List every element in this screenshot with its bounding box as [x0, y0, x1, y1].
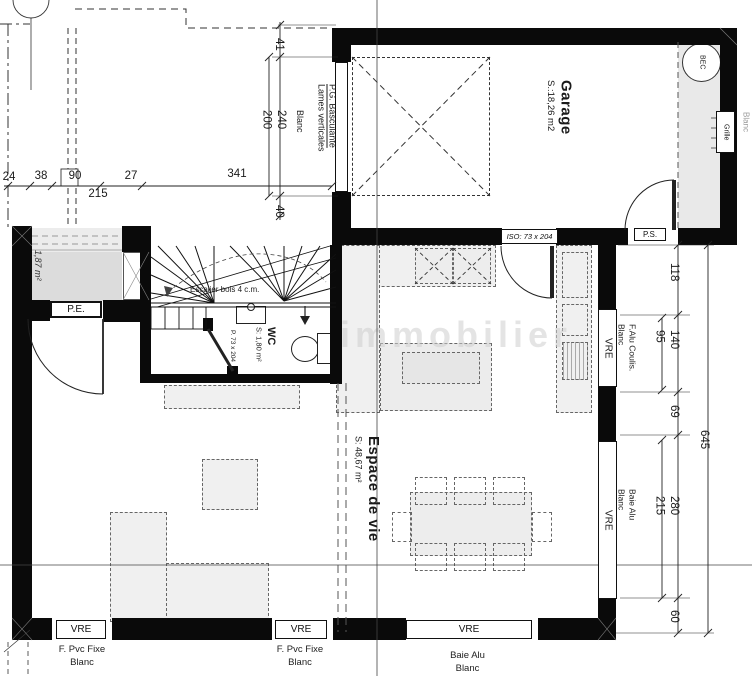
dim-60: 60	[666, 602, 680, 630]
window-type-bottom-left: F. Pvc Fixe Blanc	[42, 644, 122, 670]
dim-645: 645	[696, 420, 710, 460]
bec-floor-spout: BEC	[682, 43, 721, 82]
service-door-box: P.S.	[634, 228, 666, 241]
dim-341: 341	[215, 169, 259, 181]
grille-color-label: Blanc	[741, 112, 751, 154]
wc-area: S: 1,80 m²	[254, 327, 263, 377]
front-wall-left-stub	[32, 300, 50, 321]
kitchen-island-inner	[402, 352, 480, 384]
toilet-bowl	[291, 336, 319, 362]
toilet-tank	[317, 333, 331, 364]
zone-boundary-dashed	[338, 383, 346, 632]
garage-separating-wall-a	[332, 228, 502, 245]
porch-area-label: 1,87 m²	[32, 250, 43, 298]
stairs-label: Escalier bois 4 c.m.	[190, 285, 308, 294]
garage-separating-wall-c	[678, 228, 737, 245]
parking-space-outline	[352, 57, 490, 196]
garage-door-line1: P.G. Basculante	[326, 84, 337, 174]
window-type-line1: Baie Alu	[425, 650, 510, 663]
right-wall-a	[598, 228, 616, 309]
bottom-wall-a	[12, 618, 52, 640]
garage-door-stub-top	[332, 28, 351, 62]
garage-separating-wall-b	[556, 228, 628, 245]
hob-box-2	[453, 248, 491, 284]
chair	[493, 477, 525, 505]
dim-41: 41	[271, 28, 285, 60]
vre-box-bottom-left: VRE	[56, 620, 106, 639]
dim-215-top: 215	[76, 189, 120, 201]
dim-27: 27	[118, 171, 144, 183]
garage-door-color: Blanc	[294, 110, 305, 146]
window-type-right-top: F.Alu Coulis. Blanc	[616, 324, 637, 388]
garage-door-line2: Lames verticales	[315, 84, 326, 174]
sofa-horizontal	[166, 563, 269, 621]
stair-side-wall	[140, 226, 151, 383]
living-name: Espace de vie	[363, 436, 382, 556]
dim-40: 40	[271, 197, 285, 225]
right-wall-b	[598, 387, 616, 441]
chair	[415, 543, 447, 571]
window-type-line2: Blanc	[616, 324, 627, 388]
front-wall-right-stub	[103, 300, 140, 322]
porch-floor	[32, 252, 122, 301]
chair	[454, 477, 486, 505]
sofa-vertical	[110, 512, 167, 622]
entry-door-box: P.E.	[50, 301, 102, 318]
dim-95: 95	[652, 330, 666, 372]
vre-box-bottom-right: VRE	[406, 620, 532, 639]
pouf	[202, 459, 258, 510]
wc-washbasin-tap	[247, 303, 255, 311]
dim-69: 69	[666, 396, 680, 426]
dim-200: 200	[259, 110, 273, 150]
chair	[532, 512, 552, 542]
sideboard	[164, 385, 300, 409]
hall-bottom-wall	[143, 374, 337, 383]
dim-38: 38	[30, 171, 52, 183]
dim-118: 118	[666, 252, 680, 292]
dim-140-95: 140 95	[652, 330, 681, 372]
living-room-label: Espace de vie S: 48,67 m²	[352, 436, 382, 556]
dim-240-200: 240 200	[259, 110, 288, 150]
house-left-wall	[12, 226, 32, 633]
window-type-line1: F. Pvc Fixe	[42, 644, 122, 657]
vre-label: VRE	[602, 338, 614, 359]
garage-area: S.:18,26 m2	[544, 80, 556, 175]
vre-box-right-top: VRE	[598, 309, 617, 387]
kitchen-cabinet-inner-1	[562, 252, 588, 298]
dim-215-right: 215	[652, 496, 666, 538]
bottom-wall-d	[538, 618, 616, 640]
window-type-bottom-right: Baie Alu Blanc	[425, 650, 510, 676]
window-type-line2: Blanc	[425, 663, 510, 676]
dim-280: 280	[666, 496, 680, 538]
window-type-line1: F.Alu Coulis.	[627, 324, 638, 388]
vre-box-bottom-mid: VRE	[275, 620, 327, 639]
iso-door-box: ISO: 73 x 204	[501, 229, 558, 244]
living-area: S: 48,67 m²	[352, 436, 363, 556]
stair-direction-arrow	[300, 306, 310, 325]
vre-label: VRE	[602, 510, 614, 531]
bottom-wall-c	[333, 618, 406, 640]
grille-label: Grille	[721, 124, 729, 140]
wc-door-label: P. 73 x 204	[228, 330, 236, 375]
dim-280-215: 280 215	[652, 496, 681, 538]
window-type-line1: F. Pvc Fixe	[260, 644, 340, 657]
dim-140: 140	[666, 330, 680, 372]
chair	[415, 477, 447, 505]
garage-room-label: Garage S.:18,26 m2	[544, 80, 575, 175]
dim-90: 90	[60, 171, 90, 183]
window-type-line2: Blanc	[42, 657, 122, 670]
window-type-right-bottom: Baie Alu Blanc	[616, 489, 637, 549]
window-type-bottom-mid: F. Pvc Fixe Blanc	[260, 644, 340, 670]
chair	[392, 512, 412, 542]
garage-name: Garage	[556, 80, 575, 175]
wc-name: WC	[263, 327, 277, 377]
window-type-line2: Blanc	[260, 657, 340, 670]
window-type-line1: Baie Alu	[627, 489, 638, 549]
grille-vent-box: Grille	[716, 111, 735, 153]
chair	[493, 543, 525, 571]
vre-box-right-bottom: VRE	[598, 441, 617, 599]
watermark: immobilier	[340, 314, 572, 356]
garage-door-stub-bottom	[332, 192, 351, 233]
window-type-line2: Blanc	[616, 489, 627, 549]
bec-label: BEC	[697, 55, 705, 69]
porch-floor-top	[32, 228, 122, 252]
wc-door-post-top	[203, 318, 213, 331]
wc-room-label: WC S: 1,80 m²	[254, 327, 277, 377]
hob-box-1	[415, 248, 453, 284]
floor-plan: BEC	[0, 0, 752, 676]
dim-24: 24	[0, 172, 18, 184]
garage-door-label: P.G. Basculante Lames verticales	[315, 84, 338, 174]
bottom-wall-b	[112, 618, 272, 640]
chair	[454, 543, 486, 571]
garage-top-wall	[332, 28, 737, 45]
dim-240: 240	[273, 110, 287, 150]
